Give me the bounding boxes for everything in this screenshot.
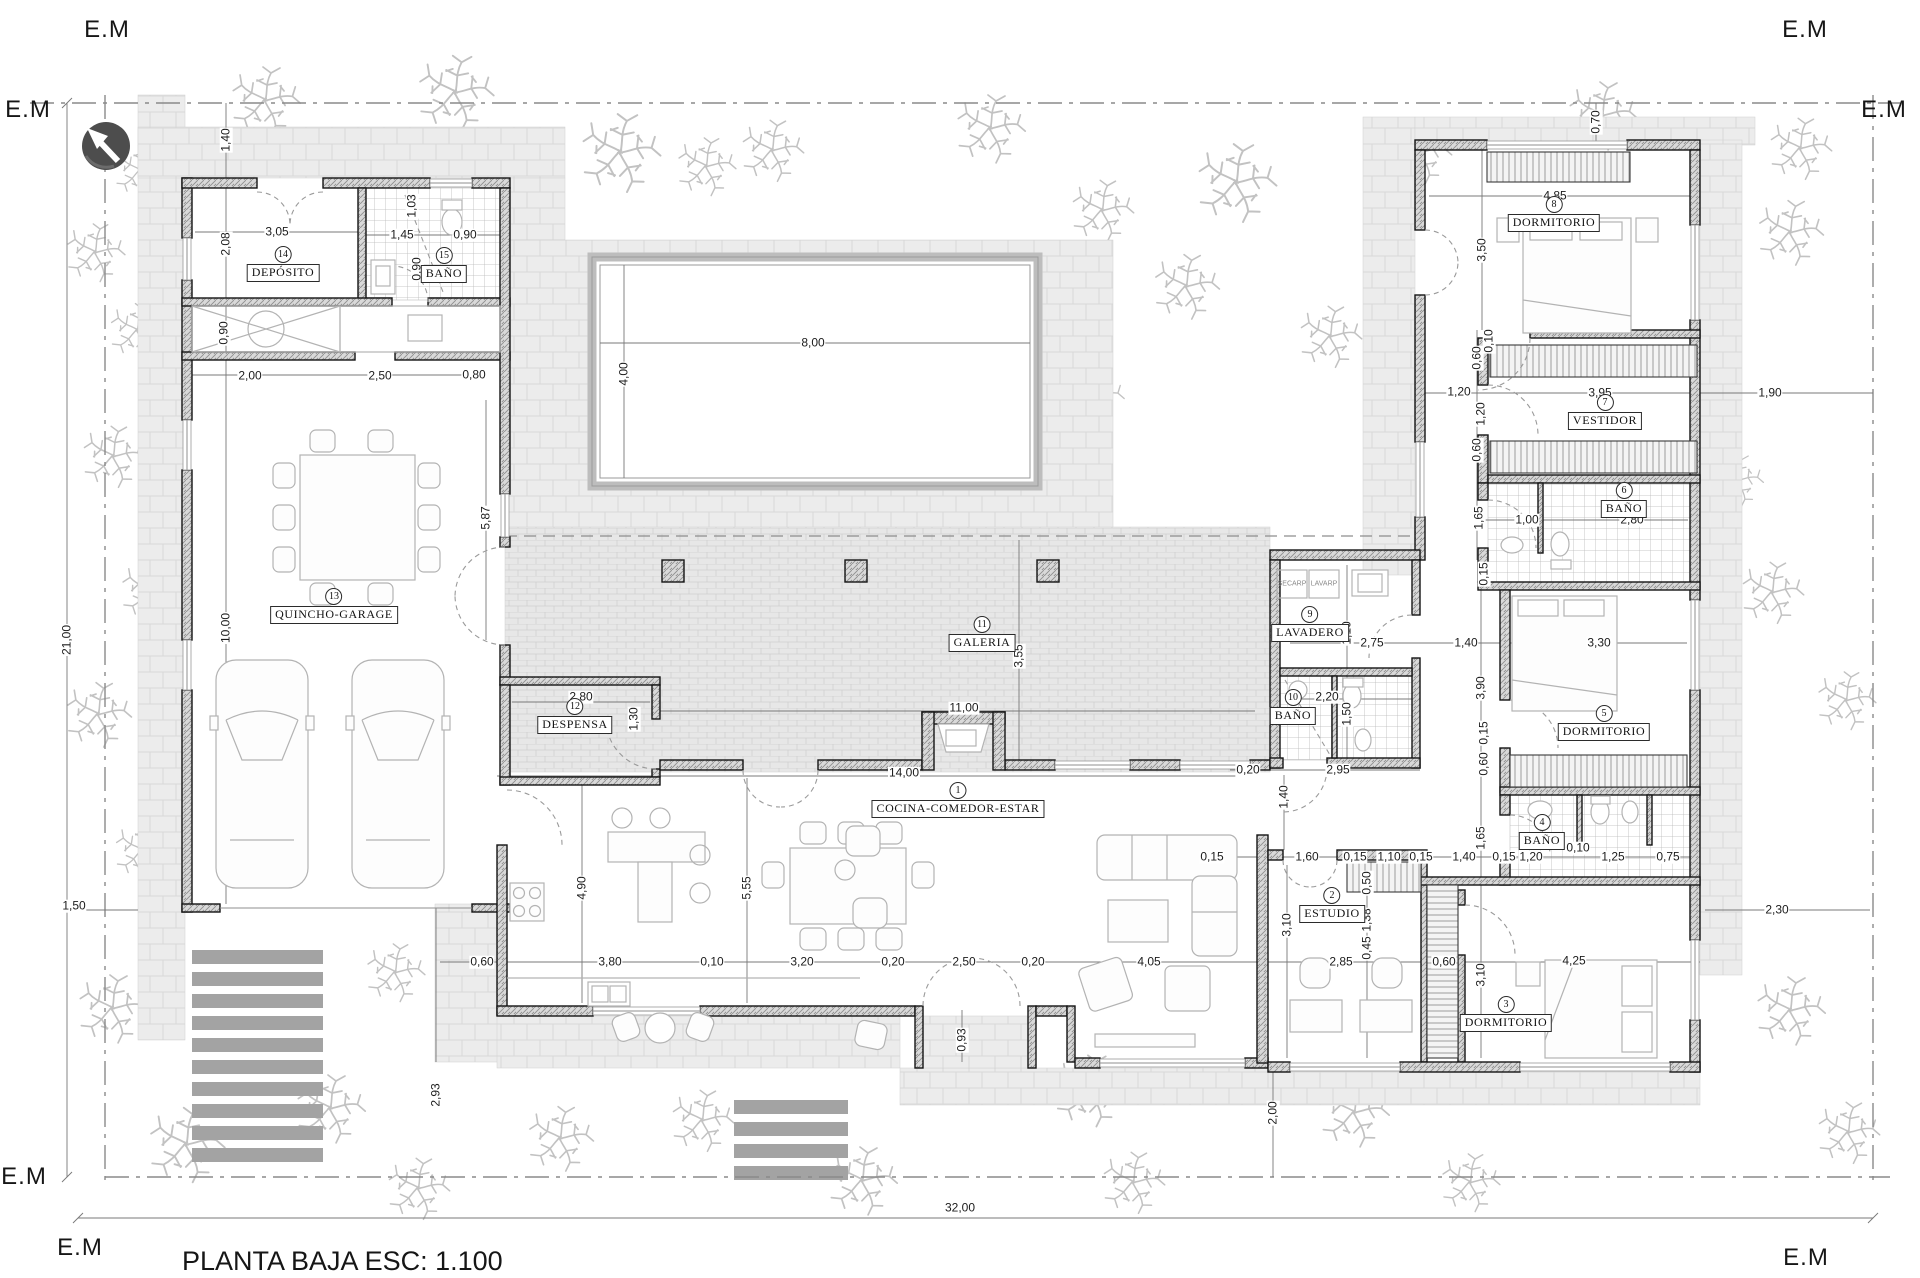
floor-plan-page: 21,0032,001,402,083,051,450,901,030,900,… bbox=[0, 0, 1920, 1278]
boundary-label-em-top-left: E.M bbox=[84, 16, 130, 44]
dimension-label: 0,70 bbox=[1590, 109, 1603, 134]
room-label-lavadero: 9LAVADERO bbox=[1271, 606, 1349, 642]
dimension-label: 0,15 bbox=[1491, 851, 1516, 864]
boundary-label-em-top-right: E.M bbox=[1782, 16, 1828, 44]
room-label-cocina-comedor-estar: 1COCINA-COMEDOR-ESTAR bbox=[871, 782, 1044, 818]
boundary-label-em-bottom-right: E.M bbox=[1783, 1244, 1829, 1272]
dimension-label: 0,15 bbox=[1342, 851, 1367, 864]
dimension-label: 0,15 bbox=[1478, 720, 1491, 745]
room-number: 2 bbox=[1324, 887, 1341, 904]
room-number: 9 bbox=[1301, 606, 1318, 623]
dimension-label: 0,60 bbox=[1471, 437, 1484, 462]
room-label-dormitorio: 8DORMITORIO bbox=[1508, 196, 1600, 232]
dimension-label: 14,00 bbox=[888, 767, 920, 780]
dimension-label: 2,00 bbox=[237, 370, 262, 383]
room-name: BAÑO bbox=[421, 265, 467, 283]
dimension-label: 1,40 bbox=[1278, 784, 1291, 809]
dimension-label: 1,50 bbox=[1341, 701, 1354, 726]
room-label-estudio: 2ESTUDIO bbox=[1299, 887, 1365, 923]
labels-layer: 21,0032,001,402,083,051,450,901,030,900,… bbox=[0, 0, 1920, 1278]
dimension-label: 2,08 bbox=[220, 231, 233, 256]
room-name: QUINCHO-GARAGE bbox=[270, 606, 398, 624]
dimension-label: 0,15 bbox=[1408, 851, 1433, 864]
dimension-label: 0,80 bbox=[461, 369, 486, 382]
room-number: 13 bbox=[325, 588, 342, 605]
room-number: 5 bbox=[1595, 705, 1612, 722]
room-name: BAÑO bbox=[1270, 707, 1316, 725]
dimension-label: 2,75 bbox=[1359, 637, 1384, 650]
dimension-label: 1,50 bbox=[61, 900, 86, 913]
dimension-label: 11,00 bbox=[948, 702, 979, 715]
room-name: BAÑO bbox=[1601, 500, 1647, 518]
dimension-label: 8,00 bbox=[800, 337, 825, 350]
room-name: DORMITORIO bbox=[1558, 723, 1650, 741]
room-name: DEPÓSITO bbox=[247, 264, 320, 282]
room-number: 10 bbox=[1285, 689, 1302, 706]
room-number: 1 bbox=[949, 782, 966, 799]
dimension-label: 0,20 bbox=[880, 956, 905, 969]
dimension-label: 3,10 bbox=[1281, 912, 1294, 937]
dimension-label: 3,10 bbox=[1475, 962, 1488, 987]
appliance-label: LAVARP bbox=[1311, 580, 1338, 587]
dimension-label: 4,05 bbox=[1136, 956, 1161, 969]
room-number: 4 bbox=[1534, 814, 1551, 831]
dimension-label: 1,65 bbox=[1473, 505, 1486, 530]
room-label-despensa: 12DESPENSA bbox=[537, 698, 612, 734]
dimension-label: 2,85 bbox=[1328, 956, 1353, 969]
dimension-label: 1,03 bbox=[406, 193, 419, 218]
room-name: COCINA-COMEDOR-ESTAR bbox=[871, 800, 1044, 818]
room-label-quincho-garage: 13QUINCHO-GARAGE bbox=[270, 588, 398, 624]
room-number: 3 bbox=[1497, 996, 1514, 1013]
room-number: 14 bbox=[275, 246, 292, 263]
dimension-label: 1,40 bbox=[1451, 851, 1476, 864]
dimension-label: 5,55 bbox=[741, 875, 754, 900]
room-label-dormitorio: 5DORMITORIO bbox=[1558, 705, 1650, 741]
room-number: 8 bbox=[1545, 196, 1562, 213]
dimension-label: 3,20 bbox=[789, 956, 814, 969]
dimension-label: 0,75 bbox=[1655, 851, 1680, 864]
room-label-dormitorio: 3DORMITORIO bbox=[1460, 996, 1552, 1032]
dimension-label: 0,10 bbox=[699, 956, 724, 969]
page-title: PLANTA BAJA ESC: 1.100 bbox=[182, 1246, 503, 1277]
room-number: 7 bbox=[1596, 394, 1613, 411]
dimension-label: 1,65 bbox=[1475, 825, 1488, 850]
room-number: 15 bbox=[436, 247, 453, 264]
dimension-label: 2,00 bbox=[1267, 1100, 1280, 1125]
dimension-label: 1,10 bbox=[1376, 851, 1401, 864]
dimension-label: 2,50 bbox=[951, 956, 976, 969]
appliance-label: SECARP bbox=[1278, 580, 1307, 587]
dimension-label: 1,40 bbox=[1453, 637, 1478, 650]
room-number: 6 bbox=[1616, 482, 1633, 499]
dimension-label: 3,50 bbox=[1476, 237, 1489, 262]
room-name: DORMITORIO bbox=[1508, 214, 1600, 232]
dimension-label: 1,30 bbox=[628, 706, 641, 731]
dimension-label: 4,00 bbox=[618, 361, 631, 386]
boundary-label-em-right: E.M bbox=[1861, 96, 1907, 124]
dimension-label: 4,25 bbox=[1561, 955, 1586, 968]
dimension-label: 2,93 bbox=[430, 1082, 443, 1107]
dimension-label: 0,20 bbox=[1235, 764, 1260, 777]
boundary-label-em-left: E.M bbox=[5, 96, 51, 124]
room-label-dep-sito: 14DEPÓSITO bbox=[247, 246, 320, 282]
dimension-label: 0,15 bbox=[1478, 561, 1491, 586]
room-number: 11 bbox=[973, 616, 990, 633]
room-name: LAVADERO bbox=[1271, 624, 1349, 642]
boundary-label-em-bottom-left: E.M bbox=[1, 1163, 47, 1191]
dimension-label: 0,60 bbox=[469, 956, 494, 969]
dimension-label: 1,40 bbox=[220, 127, 233, 152]
dimension-label: 32,00 bbox=[944, 1202, 976, 1215]
dimension-label: 1,00 bbox=[1514, 514, 1539, 527]
room-number: 12 bbox=[566, 698, 583, 715]
dimension-label: 1,45 bbox=[389, 229, 414, 242]
dimension-label: 0,15 bbox=[1199, 851, 1224, 864]
room-label-ba-o: 4BAÑO bbox=[1519, 814, 1565, 850]
dimension-label: 1,20 bbox=[1446, 386, 1471, 399]
dimension-label: 0,45 bbox=[1361, 935, 1374, 960]
dimension-label: 3,80 bbox=[597, 956, 622, 969]
room-name: DESPENSA bbox=[537, 716, 612, 734]
dimension-label: 3,05 bbox=[264, 226, 289, 239]
dimension-label: 2,20 bbox=[1314, 691, 1339, 704]
dimension-label: 0,90 bbox=[452, 229, 477, 242]
room-label-galeria: 11GALERIA bbox=[949, 616, 1016, 652]
dimension-label: 2,95 bbox=[1325, 764, 1350, 777]
room-name: ESTUDIO bbox=[1299, 905, 1365, 923]
dimension-label: 10,00 bbox=[220, 612, 233, 644]
room-label-vestidor: 7VESTIDOR bbox=[1568, 394, 1642, 430]
dimension-label: 2,50 bbox=[367, 370, 392, 383]
room-label-ba-o: 10BAÑO bbox=[1270, 689, 1316, 725]
dimension-label: 0,10 bbox=[1565, 842, 1590, 855]
dimension-label: 2,30 bbox=[1764, 904, 1789, 917]
room-name: BAÑO bbox=[1519, 832, 1565, 850]
dimension-label: 1,60 bbox=[1294, 851, 1319, 864]
dimension-label: 0,60 bbox=[1431, 956, 1456, 969]
dimension-label: 1,90 bbox=[1757, 387, 1782, 400]
boundary-label-em-bottom-left2: E.M bbox=[57, 1234, 103, 1262]
room-name: GALERIA bbox=[949, 634, 1016, 652]
dimension-label: 4,90 bbox=[576, 875, 589, 900]
room-label-ba-o: 6BAÑO bbox=[1601, 482, 1647, 518]
room-name: DORMITORIO bbox=[1460, 1014, 1552, 1032]
room-name: VESTIDOR bbox=[1568, 412, 1642, 430]
dimension-label: 21,00 bbox=[61, 624, 74, 656]
dimension-label: 0,10 bbox=[1483, 328, 1496, 353]
dimension-label: 1,20 bbox=[1518, 851, 1543, 864]
dimension-label: 1,20 bbox=[1475, 401, 1488, 426]
dimension-label: 1,25 bbox=[1600, 851, 1625, 864]
dimension-label: 0,20 bbox=[1020, 956, 1045, 969]
dimension-label: 0,60 bbox=[1478, 751, 1491, 776]
dimension-label: 0,90 bbox=[218, 320, 231, 345]
dimension-label: 0,93 bbox=[956, 1027, 969, 1052]
dimension-label: 3,90 bbox=[1475, 675, 1488, 700]
dimension-label: 3,30 bbox=[1586, 637, 1611, 650]
dimension-label: 5,87 bbox=[480, 505, 493, 530]
room-label-ba-o: 15BAÑO bbox=[421, 247, 467, 283]
